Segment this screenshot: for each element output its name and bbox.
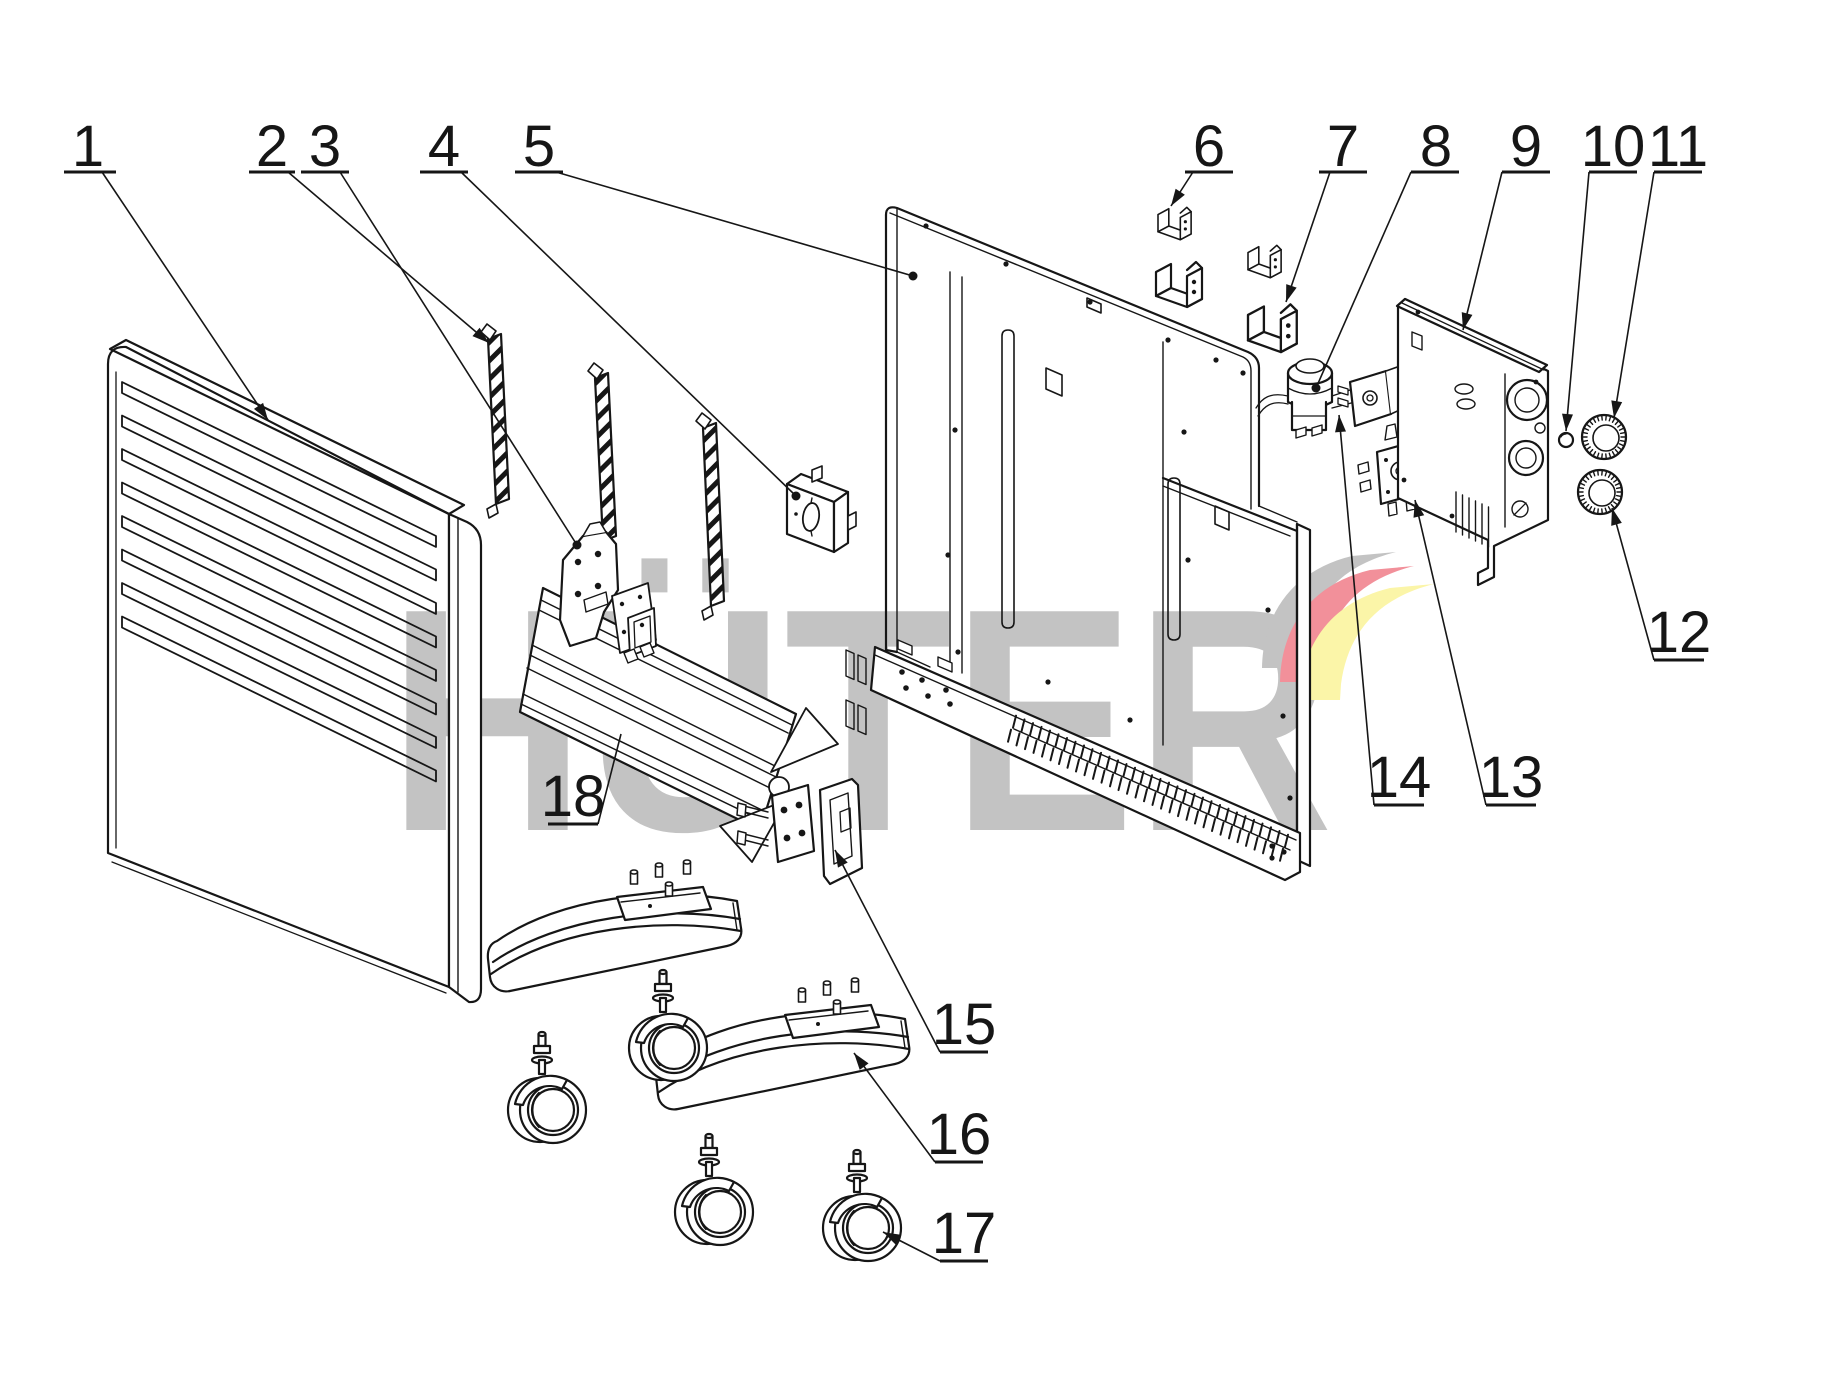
callout-10-leader xyxy=(1566,172,1589,431)
callout-2-leader xyxy=(288,172,489,343)
u-bracket-6b xyxy=(1156,262,1202,307)
caster-17a xyxy=(508,1032,586,1143)
switch-box-4 xyxy=(787,466,856,552)
callout-2-number: 2 xyxy=(256,114,288,179)
callout-3-dot-icon xyxy=(573,541,582,550)
louver-slat xyxy=(122,382,436,547)
callout-6-number: 6 xyxy=(1193,114,1225,179)
callout-1-number: 1 xyxy=(72,114,104,179)
knurl-tick xyxy=(1602,509,1603,514)
callout-8-leader xyxy=(1316,172,1411,388)
knurl-tick xyxy=(1598,470,1599,475)
callout-13-number: 13 xyxy=(1479,745,1544,810)
caster-17b xyxy=(675,1134,753,1245)
knurl-tick xyxy=(1602,470,1603,475)
callout-4-leader xyxy=(461,172,796,496)
callout-15-number: 15 xyxy=(932,992,997,1057)
callout-7-leader xyxy=(1286,172,1330,302)
callout-18-number: 18 xyxy=(541,764,606,829)
callout-3-leader xyxy=(340,172,577,545)
u-bracket-7a xyxy=(1248,245,1281,277)
callout-10-arrowhead-icon xyxy=(1562,414,1573,431)
callout-10-number: 10 xyxy=(1581,114,1646,179)
knob-12 xyxy=(1578,470,1622,514)
callout-8-dot-icon xyxy=(1312,384,1321,393)
knurl-tick xyxy=(1606,454,1607,459)
callout-7-arrowhead-icon xyxy=(1286,284,1297,302)
caster-17c xyxy=(823,1150,901,1261)
knurl-tick xyxy=(1598,509,1599,514)
callout-9-leader xyxy=(1463,172,1502,330)
callout-11-number: 11 xyxy=(1648,114,1708,179)
callout-14-arrowhead-icon xyxy=(1335,415,1346,432)
callout-5-dot-icon xyxy=(909,272,918,281)
callout-12-leader xyxy=(1612,508,1654,660)
callout-12-arrowhead-icon xyxy=(1611,508,1622,526)
caster-on-foot xyxy=(629,970,707,1081)
callout-3-number: 3 xyxy=(309,114,341,179)
thermal-cutout-8 xyxy=(1256,359,1332,438)
callout-16-leader xyxy=(854,1053,935,1162)
control-bracket-9 xyxy=(1397,299,1548,585)
exploded-parts-diagram: HÜTER xyxy=(0,0,1821,1381)
callout-9-number: 9 xyxy=(1510,114,1542,179)
callout-11-arrowhead-icon xyxy=(1611,400,1622,418)
u-bracket-6a xyxy=(1158,207,1191,239)
callout-14-number: 14 xyxy=(1367,745,1432,810)
callout-7-number: 7 xyxy=(1327,114,1359,179)
callout-16-number: 16 xyxy=(927,1102,992,1167)
callout-11-leader xyxy=(1614,172,1654,418)
vent-strip-2 xyxy=(481,324,509,518)
callout-12-number: 12 xyxy=(1647,600,1712,665)
bracket-arm-14 xyxy=(1332,366,1404,426)
callout-5-number: 5 xyxy=(523,114,555,179)
knurl-tick xyxy=(1606,415,1607,420)
callout-8-number: 8 xyxy=(1420,114,1452,179)
callout-17-number: 17 xyxy=(932,1201,997,1266)
u-bracket-7b xyxy=(1248,304,1297,352)
knob-11 xyxy=(1582,415,1626,459)
knurl-tick xyxy=(1602,454,1603,459)
callout-4-dot-icon xyxy=(792,492,801,501)
callout-5-leader xyxy=(556,172,913,276)
callout-6-arrowhead-icon xyxy=(1171,189,1185,206)
callout-4-number: 4 xyxy=(428,114,460,179)
knurl-tick xyxy=(1602,415,1603,420)
screw-ball-10 xyxy=(1559,433,1573,447)
